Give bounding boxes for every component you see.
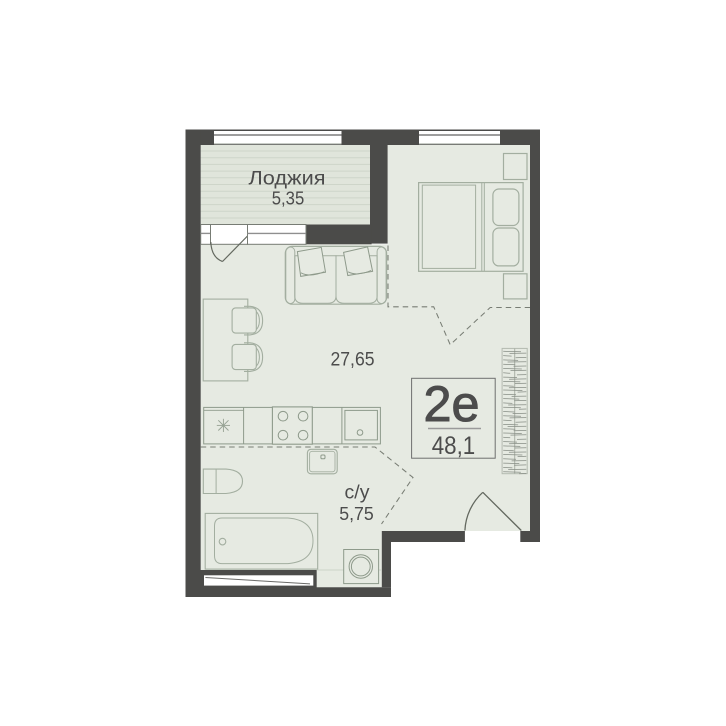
svg-text:с/у: с/у xyxy=(345,482,370,504)
svg-text:5,75: 5,75 xyxy=(339,503,374,524)
svg-text:48,1: 48,1 xyxy=(432,432,476,460)
svg-text:27,65: 27,65 xyxy=(331,348,375,370)
svg-text:Лоджия: Лоджия xyxy=(249,168,326,189)
svg-text:5,35: 5,35 xyxy=(272,187,305,208)
svg-text:2е: 2е xyxy=(424,376,480,432)
